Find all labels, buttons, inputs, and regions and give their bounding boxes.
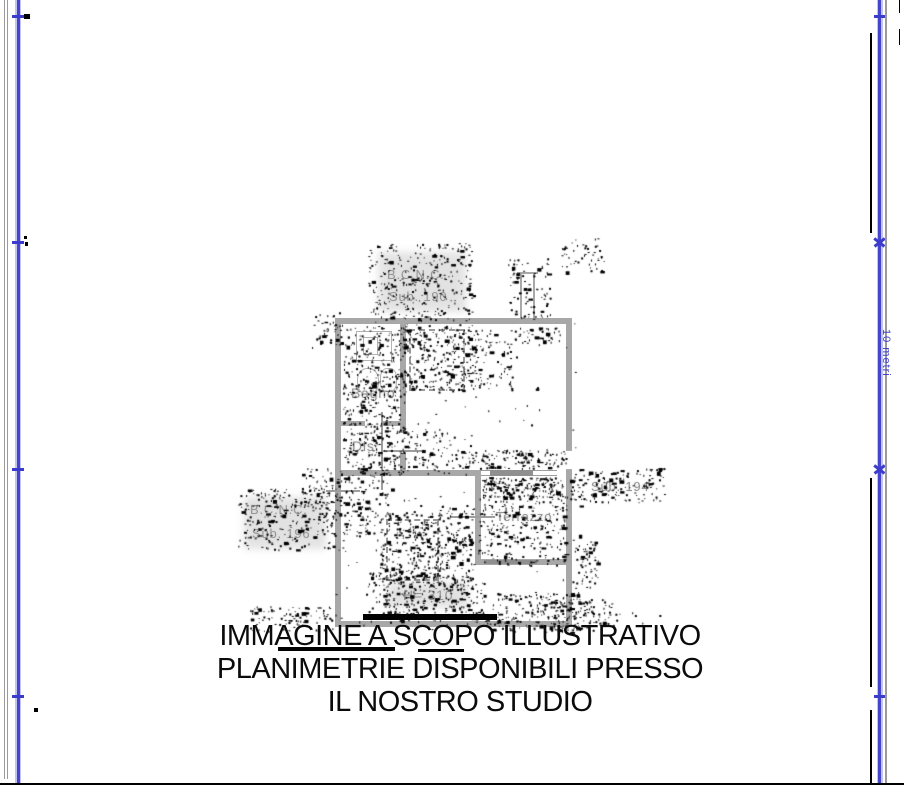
label-sub-194: Sub. 194 xyxy=(591,479,649,494)
left-scale-line xyxy=(17,0,20,785)
left-wall-tick xyxy=(326,490,360,492)
watermark-line-2: PLANIMETRIE DISPONIBILI PRESSO xyxy=(150,653,770,686)
label-sub-190: Sub. 190 xyxy=(389,289,447,304)
speck-4 xyxy=(34,708,38,712)
right-edge-mark-1 xyxy=(899,0,901,13)
watermark-line-1: IMMAGINE A SCOPO ILLUSTRATIVO xyxy=(150,620,770,653)
left-scale-tick-3 xyxy=(12,468,24,471)
wall-terrazzo-bottom-step xyxy=(484,560,537,564)
speck-3 xyxy=(25,242,28,246)
wall-bagno-divider-b xyxy=(381,421,400,426)
chimney-right-line xyxy=(533,274,535,318)
floor-plan-page: 10 metri B.C.N.C. Sub. 190 Bagno Dis. Te… xyxy=(0,0,904,785)
opening-sill-2b xyxy=(533,475,557,476)
wall-right-window-gap xyxy=(566,450,572,470)
wall-middle xyxy=(335,470,475,476)
right-dimension-line-mid xyxy=(870,478,872,687)
door-line-horizontal xyxy=(383,450,422,452)
bathtub-inner xyxy=(363,337,378,355)
right-dimension-line-bottom xyxy=(870,710,872,785)
dashed-opening-upper xyxy=(409,329,465,391)
opening-sill-2a xyxy=(533,470,557,471)
chimney-left-line xyxy=(520,274,522,318)
left-border-line-inner xyxy=(7,0,9,779)
wall-bagno-divider-a xyxy=(341,421,365,426)
wall-terrazzo-left xyxy=(475,470,481,565)
left-scale-tick-4 xyxy=(12,695,24,698)
right-scale-line xyxy=(878,0,881,785)
left-scale-tick-2 xyxy=(12,241,24,244)
right-border-line xyxy=(885,0,888,785)
scale-label: 10 metri xyxy=(880,329,892,377)
terrazzo-leader-line xyxy=(450,516,495,518)
speck-1 xyxy=(24,14,30,19)
right-edge-mark-2 xyxy=(899,29,901,45)
right-dimension-line-top xyxy=(870,33,872,233)
chimney-cap xyxy=(517,272,538,274)
label-bcnc-left: B.C.N.C. xyxy=(250,502,308,517)
left-scale-tick-1 xyxy=(12,15,24,18)
wall-middle-threshold xyxy=(490,470,533,476)
watermark-text: IMMAGINE A SCOPO ILLUSTRATIVO PLANIMETRI… xyxy=(150,620,770,719)
label-height-note: H= 310 xyxy=(403,587,453,603)
label-bagno: Bagno xyxy=(351,385,395,401)
wall-top xyxy=(335,318,572,324)
watermark-line-3: IL NOSTRO STUDIO xyxy=(150,686,770,719)
label-terrazzo: Terrazzo xyxy=(496,509,552,524)
label-bcnc-top: B.C.N.C. xyxy=(387,267,445,282)
label-sub-196: Sub. 196 xyxy=(252,526,310,541)
left-border-line-outer xyxy=(4,0,6,779)
dashed-opening-lower xyxy=(386,519,439,581)
speck-2 xyxy=(24,236,27,239)
wall-right xyxy=(566,318,572,627)
label-dis: Dis. xyxy=(352,438,379,454)
